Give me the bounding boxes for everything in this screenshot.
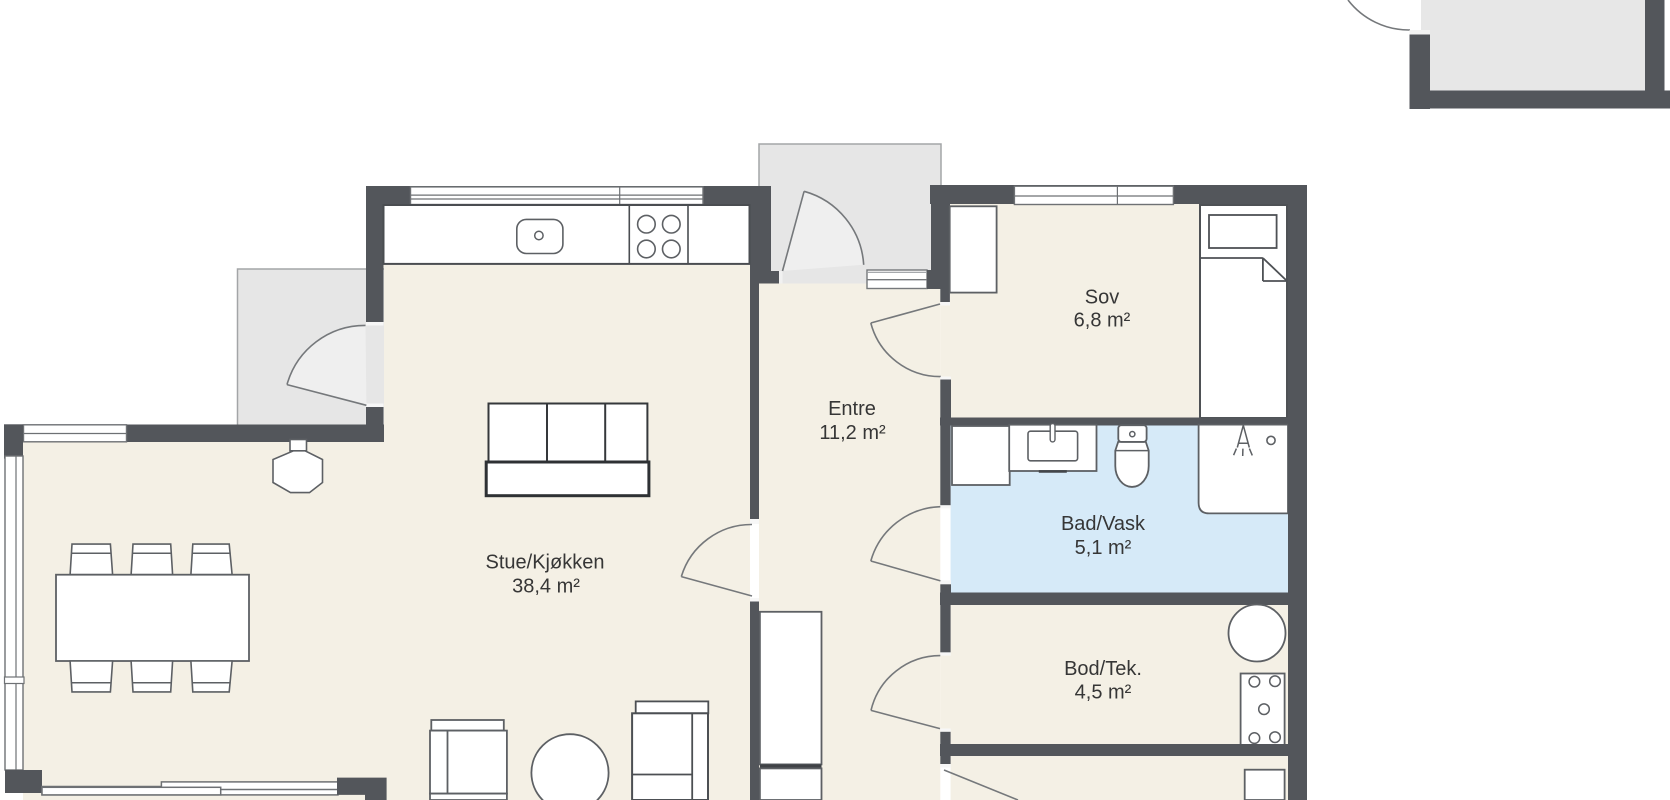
svg-text:Bod/Tek.: Bod/Tek. — [1064, 658, 1142, 680]
svg-text:Bad/Vask: Bad/Vask — [1061, 513, 1146, 535]
svg-text:38,4 m²: 38,4 m² — [512, 575, 580, 597]
svg-text:Stue/Kjøkken: Stue/Kjøkken — [486, 551, 605, 573]
svg-text:6,8 m²: 6,8 m² — [1074, 310, 1131, 332]
svg-text:Entre: Entre — [828, 398, 876, 420]
svg-text:11,2 m²: 11,2 m² — [819, 422, 886, 444]
svg-text:4,5 m²: 4,5 m² — [1075, 681, 1132, 703]
svg-text:5,1 m²: 5,1 m² — [1075, 537, 1132, 559]
svg-text:Sov: Sov — [1085, 286, 1119, 308]
